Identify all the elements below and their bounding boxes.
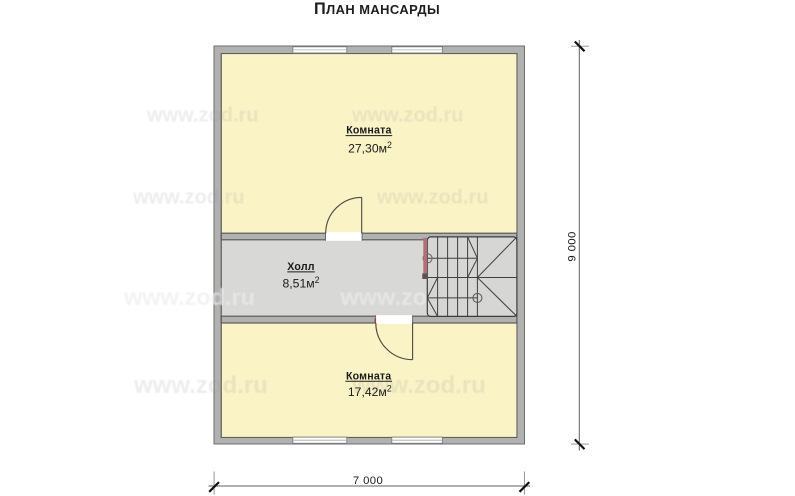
svg-text:17,42м2: 17,42м2 [348,384,392,400]
svg-text:Холл: Холл [287,261,314,273]
svg-text:Комната: Комната [346,370,391,382]
svg-text:27,30м2: 27,30м2 [348,140,392,156]
svg-text:9 000: 9 000 [567,231,579,261]
svg-text:8,51м2: 8,51м2 [283,275,320,291]
svg-text:www.zod.ru: www.zod.ru [146,105,258,127]
svg-text:www.zod.ru: www.zod.ru [133,372,268,399]
svg-text:www.zod.ru: www.zod.ru [351,105,463,127]
svg-text:www.zod.ru: www.zod.ru [123,284,255,310]
svg-text:ПЛАН МАНСАРДЫ: ПЛАН МАНСАРДЫ [314,0,440,18]
svg-text:7 000: 7 000 [353,475,383,487]
svg-text:www.zod.ru: www.zod.ru [132,187,244,209]
svg-text:Комната: Комната [346,125,391,137]
svg-text:www.zod.ru: www.zod.ru [376,187,488,209]
